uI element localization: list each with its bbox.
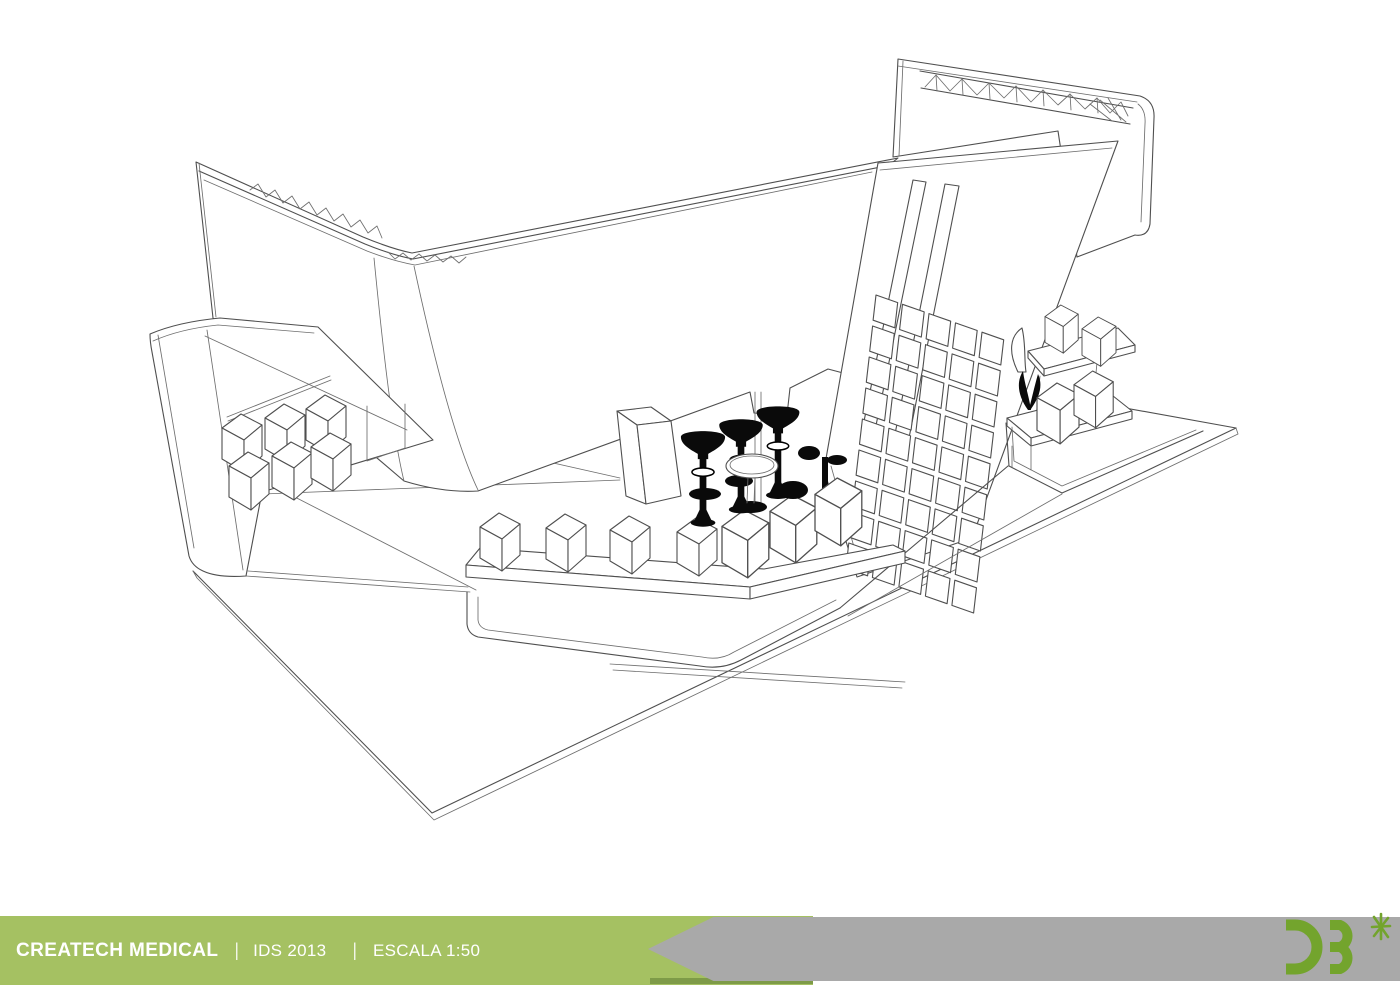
project-name: CREATECH MEDICAL bbox=[16, 940, 218, 962]
separator: | bbox=[352, 940, 357, 961]
counter-platform bbox=[467, 592, 840, 667]
footer-title-block: CREATECH MEDICAL | IDS 2013 | ESCALA 1:5… bbox=[16, 940, 480, 962]
stand-wireframe-drawing: Exhibition stand 3D wireframe line drawi… bbox=[0, 0, 1400, 900]
event-name: IDS 2013 bbox=[253, 941, 326, 961]
scale-label: ESCALA 1:50 bbox=[373, 941, 480, 961]
logo-star-icon bbox=[1372, 914, 1390, 939]
logo-letters bbox=[1286, 925, 1348, 969]
studio-logo bbox=[1278, 912, 1396, 978]
bar-stool bbox=[681, 431, 725, 527]
separator: | bbox=[234, 940, 239, 961]
presentation-sheet: Exhibition stand 3D wireframe line drawi… bbox=[0, 0, 1400, 991]
leaning-column bbox=[617, 407, 681, 504]
stool-shadow bbox=[827, 455, 847, 465]
stool-shadow bbox=[798, 446, 820, 460]
